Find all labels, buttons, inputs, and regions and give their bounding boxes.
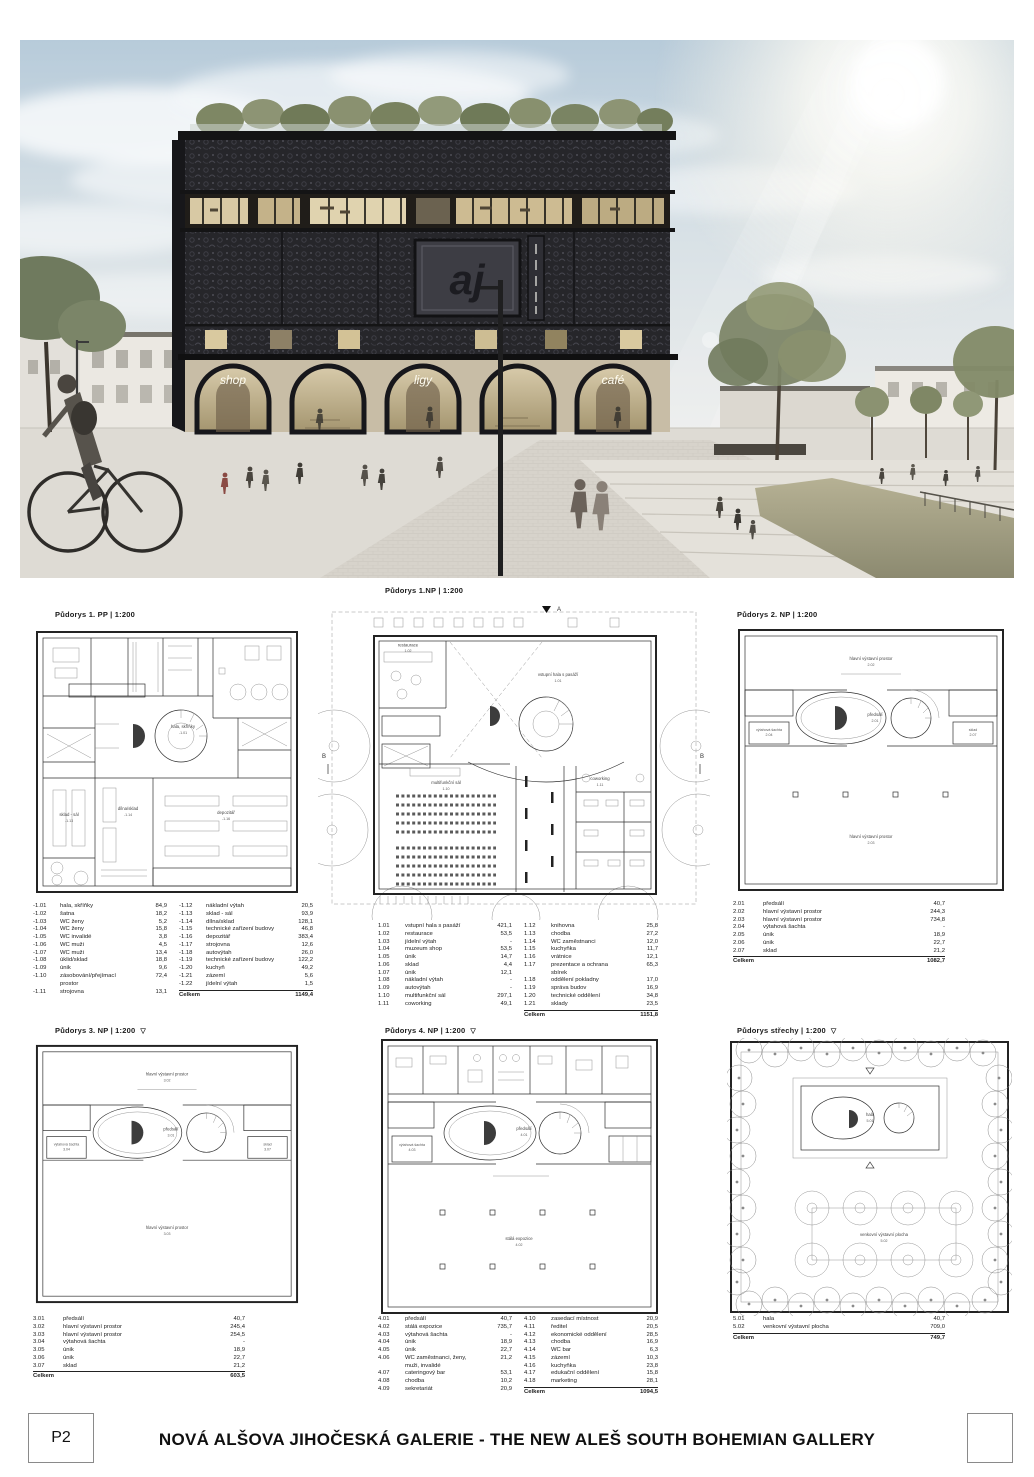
- legend-row: 4.06WC zaměstnanci, ženy, muži, invalidé…: [378, 1355, 512, 1371]
- svg-text:3.02: 3.02: [164, 1078, 171, 1082]
- svg-text:5.01: 5.01: [867, 1119, 874, 1123]
- arch-3: ligy: [387, 366, 459, 432]
- svg-text:výtahová šachta: výtahová šachta: [399, 1143, 425, 1147]
- cornice: [178, 131, 676, 140]
- legend-row: 4.18marketing28,1: [524, 1378, 658, 1386]
- svg-text:1.10: 1.10: [443, 787, 450, 791]
- footer-right-box: [967, 1413, 1013, 1463]
- svg-text:sklad - sál: sklad - sál: [59, 812, 78, 817]
- legend-total-row: Celkem1094,5: [524, 1387, 658, 1397]
- svg-text:2.04: 2.04: [766, 733, 773, 737]
- legend-roof: 5.01hala40,75.02venkovní výstavní plocha…: [733, 1316, 945, 1342]
- legend-row: -1.21zázemí5,6: [179, 973, 313, 981]
- legend-total-row: Celkem603,5: [33, 1371, 245, 1381]
- legend-row: 1.15kuchyňka11,7: [524, 946, 658, 954]
- legend-row: 2.04výtahová šachta-: [733, 924, 945, 932]
- legend-row: -1.06WC muži4,5: [33, 942, 167, 950]
- svg-text:sklad: sklad: [969, 728, 977, 732]
- svg-text:1.11: 1.11: [597, 783, 604, 787]
- footbridge: [714, 444, 806, 455]
- board-title: NOVÁ ALŠOVA JIHOČESKÁ GALERIE - THE NEW …: [0, 1430, 1034, 1450]
- legend-row: 1.10multifunkční sál297,1: [378, 993, 512, 1001]
- legend-row: 1.01vstupní hala s pasáží421,1: [378, 923, 512, 931]
- legend-row: 4.01předsálí40,7: [378, 1316, 512, 1324]
- svg-text:3.01: 3.01: [168, 1134, 175, 1138]
- svg-text:výtahová šachta: výtahová šachta: [756, 728, 782, 732]
- legend-1np: 1.01vstupní hala s pasáží421,11.02restau…: [378, 923, 658, 1019]
- arch-1: shop: [197, 366, 269, 432]
- legend-4np: 4.01předsálí40,74.02stálá expozice735,74…: [378, 1316, 658, 1397]
- legend-row: -1.15technické zařízení budovy46,8: [179, 926, 313, 934]
- svg-text:hala: hala: [866, 1112, 875, 1117]
- legend-row: 4.16kuchyňka23,8: [524, 1363, 658, 1371]
- plan-title-3np: Půdorys 3. NP | 1:200▽: [55, 1026, 146, 1035]
- legend-row: 4.12ekonomické oddělení28,5: [524, 1332, 658, 1340]
- legend-row: -1.01hala, skříňky84,9: [33, 903, 167, 911]
- legend-row: 1.06sklad4,4: [378, 962, 512, 970]
- legend-4np-col-2: 4.10zasedací místnost20,94.11ředitel20,5…: [524, 1316, 658, 1397]
- legend-row: -1.20kuchyň49,2: [179, 965, 313, 973]
- svg-text:hlavní výstavní prostor: hlavní výstavní prostor: [850, 656, 894, 661]
- legend-row: -1.12nákladní výtah20,5: [179, 903, 313, 911]
- small-window-band: [185, 324, 670, 354]
- svg-text:3.04: 3.04: [63, 1147, 70, 1151]
- legend-row: 2.03hlavní výstavní prostor734,8: [733, 917, 945, 925]
- legend-row: 2.01předsálí40,7: [733, 901, 945, 909]
- legend-row: 3.06únik22,7: [33, 1355, 245, 1363]
- legend-row: 1.11coworking49,1: [378, 1001, 512, 1009]
- legend-row: 4.15zázemí10,3: [524, 1355, 658, 1363]
- legend-row: 4.10zasedací místnost20,9: [524, 1316, 658, 1324]
- plan-drawing-1pp: hala, skříňky -1.01 sklad - sál -1.13 dí…: [33, 628, 301, 896]
- legend-row: -1.22jídelní výtah1,5: [179, 981, 313, 989]
- svg-text:B: B: [322, 754, 326, 760]
- svg-text:2.03: 2.03: [868, 841, 875, 845]
- legend-row: 1.21sklady23,5: [524, 1001, 658, 1009]
- legend-1np-col-1: 1.01vstupní hala s pasáží421,11.02restau…: [378, 923, 512, 1019]
- svg-text:stálá expozice: stálá expozice: [505, 1236, 533, 1241]
- legend-total-row: Celkem1151,8: [524, 1010, 658, 1020]
- svg-text:2.02: 2.02: [868, 663, 875, 667]
- legend-row: 4.04únik18,9: [378, 1339, 512, 1347]
- svg-text:hlavní výstavní prostor: hlavní výstavní prostor: [146, 1071, 189, 1076]
- neon-sign-cafe: café: [602, 373, 625, 387]
- legend-row: 4.05únik22,7: [378, 1347, 512, 1355]
- legend-row: 3.03hlavní výstavní prostor254,5: [33, 1332, 245, 1340]
- arch-4: [482, 366, 554, 432]
- legend-row: -1.19technické zařízení budovy122,2: [179, 957, 313, 965]
- legend-1np-col-2: 1.12knihovna25,81.13chodba27,21.14WC zam…: [524, 923, 658, 1019]
- legend-roof-col-1: 5.01hala40,75.02venkovní výstavní plocha…: [733, 1316, 945, 1342]
- legend-row: 4.08chodba10,2: [378, 1378, 512, 1386]
- legend-row: 5.02venkovní výstavní plocha709,0: [733, 1324, 945, 1332]
- legend-total-row: Celkem1149,4: [179, 990, 313, 1000]
- legend-row: 1.13chodba27,2: [524, 931, 658, 939]
- legend-row: 1.17prezentace a ochrana sbírek65,3: [524, 962, 658, 978]
- legend-row: 1.18oddělení pokladny17,0: [524, 977, 658, 985]
- legend-row: 1.05únik14,7: [378, 954, 512, 962]
- plan-drawing-roof: hala 5.01 venkovní výstavní plocha 5.02: [727, 1038, 1012, 1316]
- legend-row: 3.01předsálí40,7: [33, 1316, 245, 1324]
- plan-title-4np: Půdorys 4. NP | 1:200▽: [385, 1026, 476, 1035]
- legend-3np: 3.01předsálí40,73.02hlavní výstavní pros…: [33, 1316, 245, 1381]
- svg-text:hala, skříňky: hala, skříňky: [171, 724, 196, 729]
- legend-1pp: -1.01hala, skříňky84,9-1.02šatna18,2-1.0…: [33, 903, 313, 999]
- legend-row: -1.11strojovna13,1: [33, 989, 167, 997]
- legend-row: 1.12knihovna25,8: [524, 923, 658, 931]
- legend-row: -1.08úklid/sklad18,8: [33, 957, 167, 965]
- legend-row: -1.17strojovna12,6: [179, 942, 313, 950]
- svg-text:coworking: coworking: [590, 776, 610, 781]
- plan-drawing-3np: hlavní výstavní prostor 3.02 předsálí 3.…: [33, 1040, 301, 1308]
- svg-text:2.01: 2.01: [872, 719, 879, 723]
- svg-text:1.02: 1.02: [405, 649, 412, 653]
- legend-total-row: Celkem749,7: [733, 1333, 945, 1343]
- plan-title-roof: Půdorys střechy | 1:200▽: [737, 1026, 836, 1035]
- svg-text:hlavní výstavní prostor: hlavní výstavní prostor: [850, 834, 894, 839]
- svg-text:restaurace: restaurace: [398, 643, 419, 648]
- svg-text:venkovní výstavní plocha: venkovní výstavní plocha: [860, 1232, 909, 1237]
- legend-row: 4.02stálá expozice735,7: [378, 1324, 512, 1332]
- svg-text:předsálí: předsálí: [163, 1127, 179, 1132]
- legend-row: -1.04WC ženy15,8: [33, 926, 167, 934]
- legend-row: 4.09sekretariát20,9: [378, 1386, 512, 1394]
- svg-text:-1.14: -1.14: [124, 813, 132, 817]
- legend-2np-col-1: 2.01předsálí40,72.02hlavní výstavní pros…: [733, 901, 945, 966]
- svg-text:dílna/sklad: dílna/sklad: [118, 806, 139, 811]
- plan-drawing-4np: předsálí 4.01 stálá expozice 4.02 výtaho…: [378, 1036, 661, 1317]
- legend-3np-col-1: 3.01předsálí40,73.02hlavní výstavní pros…: [33, 1316, 245, 1381]
- ornament-band-upper: [185, 140, 670, 190]
- gallery-logo-monogram: aj: [449, 256, 485, 303]
- legend-row: -1.18autovýtah26,0: [179, 950, 313, 958]
- section-marker-icon: ▽: [831, 1028, 837, 1035]
- svg-text:výtahová šachta: výtahová šachta: [54, 1142, 80, 1146]
- lamp-post: [498, 280, 503, 576]
- legend-row: 5.01hala40,7: [733, 1316, 945, 1324]
- legend-row: -1.02šatna18,2: [33, 911, 167, 919]
- svg-text:předsálí: předsálí: [867, 712, 883, 717]
- svg-text:-1.01: -1.01: [179, 731, 187, 735]
- svg-text:depozitář: depozitář: [217, 810, 235, 815]
- svg-text:4.02: 4.02: [516, 1243, 523, 1247]
- architectural-rendering: aj shop: [20, 40, 1014, 578]
- legend-row: 2.02hlavní výstavní prostor244,3: [733, 909, 945, 917]
- plan-title-1pp: Půdorys 1. PP | 1:200: [55, 610, 135, 619]
- legend-row: 1.02restaurace53,5: [378, 931, 512, 939]
- presentation-board: { "footer": { "sheet_no": "P2", "title":…: [0, 0, 1034, 1477]
- legend-4np-col-1: 4.01předsálí40,74.02stálá expozice735,74…: [378, 1316, 512, 1397]
- legend-row: 4.11ředitel20,5: [524, 1324, 658, 1332]
- svg-text:předsálí: předsálí: [516, 1126, 532, 1131]
- plan-drawing-2np: hlavní výstavní prostor 2.02 předsálí 2.…: [735, 626, 1007, 894]
- section-marker-icon: ▽: [470, 1028, 476, 1035]
- legend-row: -1.09únik9,6: [33, 965, 167, 973]
- legend-row: 1.09autovýtah-: [378, 985, 512, 993]
- legend-row: 1.16vrátnice12,1: [524, 954, 658, 962]
- legend-row: 3.05únik18,9: [33, 1347, 245, 1355]
- svg-text:hlavní výstavní prostor: hlavní výstavní prostor: [146, 1225, 189, 1230]
- plan-drawing-1np: A B B vstupní hala s pasáží 1.01 multifu…: [318, 596, 710, 920]
- svg-text:multifunkční sál: multifunkční sál: [431, 780, 461, 785]
- legend-row: 1.20technické oddělení34,8: [524, 993, 658, 1001]
- legend-row: -1.16depozitář383,4: [179, 934, 313, 942]
- canopy: [178, 354, 678, 360]
- svg-text:sklad: sklad: [263, 1142, 271, 1146]
- arcade-ground-floor: shop ligy café: [185, 360, 670, 432]
- legend-row: -1.07WC muži13,4: [33, 950, 167, 958]
- legend-row: 4.03výtahová šachta-: [378, 1332, 512, 1340]
- legend-row: 2.05únik18,9: [733, 932, 945, 940]
- arch-5: café: [577, 366, 649, 432]
- legend-row: 1.07únik12,1: [378, 970, 512, 978]
- legend-row: 2.06únik22,7: [733, 940, 945, 948]
- legend-row: 4.17edukační oddělení15,8: [524, 1370, 658, 1378]
- glass-band: [185, 194, 670, 228]
- svg-text:-1.13: -1.13: [65, 819, 73, 823]
- svg-text:B: B: [700, 754, 704, 760]
- rendering-canvas: aj shop: [20, 40, 1014, 578]
- legend-row: -1.05WC invalidé3,8: [33, 934, 167, 942]
- gallery-building: aj shop: [172, 96, 678, 432]
- lens-flare: [702, 332, 718, 348]
- legend-row: 3.02hlavní výstavní prostor245,4: [33, 1324, 245, 1332]
- glass-parapet: [190, 124, 662, 131]
- legend-row: 3.04výtahová šachta-: [33, 1339, 245, 1347]
- svg-text:vstupní hala s pasáží: vstupní hala s pasáží: [538, 672, 579, 677]
- svg-text:3.03: 3.03: [164, 1232, 171, 1236]
- plan-title-1np: Půdorys 1.NP | 1:200: [385, 586, 463, 595]
- legend-row: 4.13chodba16,9: [524, 1339, 658, 1347]
- legend-1pp-col-1: -1.01hala, skříňky84,9-1.02šatna18,2-1.0…: [33, 903, 167, 999]
- legend-row: 1.03jídelní výtah-: [378, 939, 512, 947]
- plan-title-2np: Půdorys 2. NP | 1:200: [737, 610, 817, 619]
- legend-row: 1.19správa budov16,9: [524, 985, 658, 993]
- svg-text:4.03: 4.03: [409, 1148, 416, 1152]
- building-side-face: [172, 140, 185, 432]
- svg-text:1.01: 1.01: [555, 679, 562, 683]
- neon-sign-shop: shop: [220, 373, 246, 387]
- svg-text:-1.16: -1.16: [222, 817, 230, 821]
- legend-total-row: Celkem1082,7: [733, 956, 945, 966]
- legend-row: 1.04muzeum shop53,5: [378, 946, 512, 954]
- ornament-band-main: aj: [185, 232, 670, 324]
- legend-row: 2.07sklad21,2: [733, 948, 945, 956]
- svg-text:4.01: 4.01: [521, 1133, 528, 1137]
- legend-row: 1.08nákladní výtah-: [378, 977, 512, 985]
- legend-1pp-col-2: -1.12nákladní výtah20,5-1.13sklad - sál9…: [179, 903, 313, 999]
- svg-text:5.02: 5.02: [881, 1239, 888, 1243]
- legend-row: -1.14dílna/sklad128,1: [179, 919, 313, 927]
- legend-row: 4.07cateringový bar53,1: [378, 1370, 512, 1378]
- svg-text:A: A: [557, 607, 561, 613]
- legend-row: 4.14WC bar6,3: [524, 1347, 658, 1355]
- lamp-arm: [480, 286, 500, 290]
- legend-row: -1.10zásobování/přejímací prostor72,4: [33, 973, 167, 989]
- arch-2: [292, 366, 364, 432]
- neon-sign-gallery: ligy: [414, 373, 433, 387]
- legend-row: -1.03WC ženy5,2: [33, 919, 167, 927]
- svg-text:2.07: 2.07: [970, 733, 977, 737]
- section-marker-icon: ▽: [140, 1028, 146, 1035]
- legend-row: -1.13sklad - sál93,9: [179, 911, 313, 919]
- legend-row: 1.14WC zaměstnanci12,0: [524, 939, 658, 947]
- legend-row: 3.07sklad21,2: [33, 1363, 245, 1371]
- legend-2np: 2.01předsálí40,72.02hlavní výstavní pros…: [733, 901, 945, 966]
- svg-text:3.07: 3.07: [264, 1147, 271, 1151]
